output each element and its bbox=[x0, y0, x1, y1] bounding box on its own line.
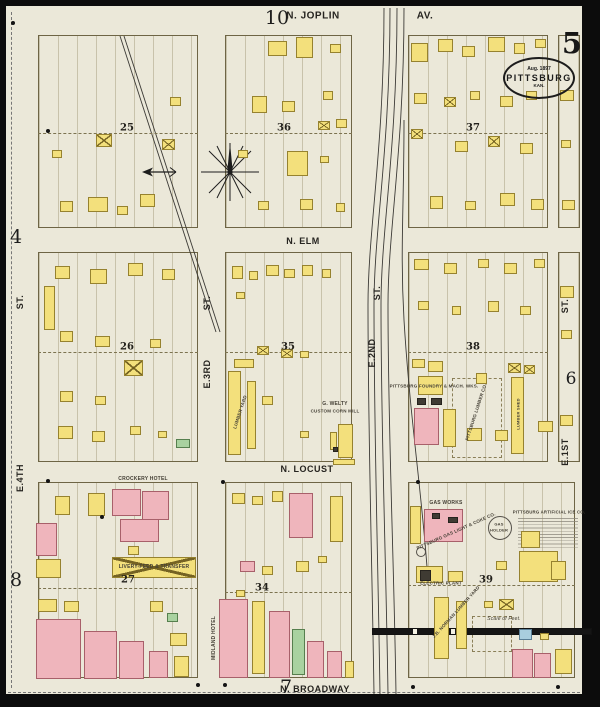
alley-line bbox=[38, 352, 198, 353]
building bbox=[236, 292, 245, 299]
building bbox=[272, 491, 283, 502]
building bbox=[38, 599, 57, 612]
building bbox=[470, 91, 480, 100]
building bbox=[302, 265, 313, 276]
stamp-state: KAN. bbox=[534, 83, 545, 88]
map-label: E.3RD bbox=[202, 359, 212, 388]
stamp-city: PITTSBURG bbox=[506, 73, 572, 83]
building bbox=[300, 351, 309, 358]
survey-dot bbox=[416, 480, 420, 484]
lumber-yard-outline bbox=[452, 378, 502, 458]
building bbox=[90, 269, 107, 284]
building bbox=[414, 408, 439, 445]
building bbox=[488, 37, 505, 52]
building bbox=[345, 661, 354, 678]
building bbox=[488, 301, 499, 312]
map-label: ST. bbox=[15, 295, 25, 310]
building bbox=[561, 140, 571, 148]
building bbox=[336, 203, 345, 212]
map-label: E.1ST bbox=[560, 438, 570, 466]
building bbox=[488, 136, 500, 147]
building bbox=[452, 306, 461, 315]
building bbox=[257, 346, 269, 355]
building bbox=[170, 97, 181, 106]
scale-bar bbox=[372, 628, 592, 635]
building bbox=[176, 439, 190, 448]
building bbox=[300, 431, 309, 438]
building bbox=[96, 134, 112, 147]
map-label: N. JOPLIN bbox=[286, 11, 339, 22]
alley-line bbox=[38, 588, 198, 589]
building bbox=[333, 459, 355, 465]
map-label: N. ELM bbox=[286, 236, 320, 246]
map-label: GAS bbox=[494, 522, 503, 527]
building bbox=[88, 493, 105, 516]
building bbox=[431, 398, 442, 405]
building bbox=[300, 199, 313, 210]
survey-dot bbox=[411, 685, 415, 689]
map-label: MIDLAND HOTEL bbox=[211, 616, 217, 660]
building bbox=[333, 447, 338, 452]
building bbox=[36, 559, 61, 578]
building bbox=[64, 601, 79, 612]
survey-dot bbox=[46, 129, 50, 133]
building bbox=[520, 143, 533, 154]
building bbox=[128, 263, 143, 276]
building bbox=[119, 641, 144, 679]
building bbox=[519, 629, 532, 640]
building bbox=[95, 336, 110, 347]
building bbox=[438, 39, 453, 52]
building bbox=[521, 531, 540, 548]
building bbox=[535, 39, 546, 48]
building bbox=[296, 37, 313, 58]
building bbox=[561, 330, 572, 339]
building bbox=[444, 263, 457, 274]
building bbox=[55, 266, 70, 279]
building bbox=[531, 199, 544, 210]
map-label: ST. bbox=[372, 286, 382, 301]
building bbox=[162, 269, 175, 280]
building bbox=[158, 431, 167, 438]
building bbox=[142, 491, 169, 520]
building bbox=[236, 590, 245, 597]
building bbox=[55, 496, 70, 515]
building bbox=[338, 424, 353, 458]
map-label: PITTSBURG FOUNDRY & MACH. WKS. bbox=[390, 384, 479, 389]
alley-line bbox=[38, 133, 198, 134]
building bbox=[484, 601, 493, 608]
building bbox=[420, 570, 431, 581]
map-label: G. WELTY bbox=[322, 401, 347, 407]
building bbox=[120, 519, 159, 542]
building bbox=[296, 561, 309, 572]
building bbox=[238, 150, 248, 158]
building bbox=[36, 523, 57, 556]
building bbox=[538, 421, 553, 432]
building bbox=[36, 619, 81, 679]
building bbox=[476, 373, 487, 384]
building bbox=[150, 339, 161, 348]
map-label: 38 bbox=[466, 342, 480, 353]
building bbox=[318, 556, 327, 563]
building bbox=[170, 633, 187, 646]
map-label: 7 bbox=[280, 676, 292, 698]
building bbox=[84, 631, 117, 679]
building bbox=[500, 193, 515, 206]
building bbox=[455, 141, 468, 152]
building bbox=[330, 44, 341, 53]
building bbox=[60, 331, 73, 342]
building bbox=[292, 629, 305, 675]
building bbox=[268, 41, 287, 56]
building bbox=[410, 506, 421, 544]
west-arrow-icon bbox=[140, 164, 180, 180]
building bbox=[512, 649, 533, 678]
map-label: HOLDER bbox=[490, 528, 508, 533]
building bbox=[534, 653, 551, 678]
map-label: AV. bbox=[417, 11, 434, 22]
building bbox=[499, 599, 514, 610]
building bbox=[150, 601, 163, 612]
building bbox=[262, 566, 273, 575]
map-label: 27 bbox=[121, 575, 135, 586]
building bbox=[269, 611, 290, 678]
building bbox=[232, 266, 243, 279]
building bbox=[524, 365, 535, 374]
building bbox=[418, 301, 429, 310]
map-label: ELECTRIC PLANT bbox=[420, 581, 462, 586]
building bbox=[430, 196, 443, 209]
building bbox=[555, 649, 572, 674]
survey-dot bbox=[196, 683, 200, 687]
building bbox=[562, 200, 575, 210]
map-label: 6 bbox=[566, 369, 577, 389]
building bbox=[508, 363, 521, 373]
building bbox=[496, 561, 507, 570]
building bbox=[520, 306, 531, 315]
building bbox=[514, 43, 525, 54]
building bbox=[140, 194, 155, 207]
building bbox=[174, 656, 189, 677]
building bbox=[52, 150, 62, 158]
building bbox=[287, 151, 308, 176]
building bbox=[534, 259, 545, 268]
building bbox=[58, 426, 73, 439]
survey-dot bbox=[46, 479, 50, 483]
map-label: CUSTOM CORN MILL bbox=[311, 409, 360, 414]
building bbox=[262, 396, 273, 405]
building bbox=[282, 101, 295, 112]
building bbox=[95, 396, 106, 405]
building bbox=[462, 46, 475, 57]
building bbox=[318, 121, 330, 130]
survey-dot bbox=[221, 480, 225, 484]
building bbox=[560, 415, 573, 426]
compass-rose-icon bbox=[198, 140, 262, 204]
building bbox=[411, 129, 423, 139]
building bbox=[232, 493, 245, 504]
map-label: 35 bbox=[281, 342, 295, 353]
building bbox=[330, 496, 343, 542]
map-label: 39 bbox=[479, 575, 493, 586]
building bbox=[117, 206, 128, 215]
building bbox=[428, 361, 443, 372]
building bbox=[322, 269, 331, 278]
survey-dot bbox=[556, 685, 560, 689]
building bbox=[167, 613, 178, 622]
map-label: 34 bbox=[255, 583, 269, 594]
building bbox=[504, 263, 517, 274]
building bbox=[444, 97, 456, 107]
building bbox=[320, 156, 329, 163]
building bbox=[412, 359, 425, 368]
building bbox=[249, 271, 258, 280]
map-label: E.2ND bbox=[367, 338, 377, 367]
building bbox=[162, 139, 175, 150]
building bbox=[60, 391, 73, 402]
survey-dot bbox=[11, 21, 15, 25]
building bbox=[252, 496, 263, 505]
building bbox=[500, 96, 513, 107]
sanborn-map-sheet: 5 Aug. 1897 PITTSBURG KAN. 10N. JOPLINAV… bbox=[0, 0, 600, 707]
building bbox=[336, 119, 347, 128]
building bbox=[92, 431, 105, 442]
map-label: LUMBER SHED bbox=[516, 398, 521, 430]
building bbox=[495, 430, 508, 441]
survey-dot bbox=[223, 683, 227, 687]
building bbox=[149, 651, 168, 678]
publisher-stamp: Aug. 1897 PITTSBURG KAN. bbox=[503, 57, 575, 99]
building bbox=[247, 381, 256, 449]
survey-dot bbox=[100, 515, 104, 519]
building bbox=[414, 93, 427, 104]
sheet-number: 5 bbox=[558, 26, 586, 60]
building bbox=[258, 201, 269, 210]
building bbox=[414, 259, 429, 270]
building bbox=[478, 259, 489, 268]
map-label: 25 bbox=[120, 123, 134, 134]
map-label: 36 bbox=[277, 123, 291, 134]
building bbox=[432, 513, 440, 519]
building bbox=[130, 426, 141, 435]
building bbox=[560, 286, 574, 298]
building bbox=[443, 409, 456, 447]
building bbox=[88, 197, 108, 212]
map-label: 26 bbox=[120, 342, 134, 353]
building bbox=[252, 96, 267, 113]
map-label: 37 bbox=[466, 123, 480, 134]
building bbox=[128, 546, 139, 555]
building bbox=[551, 561, 566, 580]
map-label: E.4TH bbox=[15, 464, 25, 492]
building bbox=[112, 489, 141, 516]
building bbox=[124, 360, 143, 376]
building bbox=[284, 269, 295, 278]
building bbox=[540, 633, 549, 640]
building bbox=[323, 91, 333, 100]
building bbox=[417, 398, 426, 405]
map-label: N. LOCUST bbox=[281, 464, 334, 474]
building bbox=[327, 651, 342, 678]
map-label: Scale of Feet. bbox=[487, 616, 521, 622]
map-label: LIVERY-FEED & TRANSFER bbox=[119, 564, 190, 570]
building bbox=[448, 517, 458, 523]
map-label: CROCKERY HOTEL bbox=[118, 476, 167, 482]
building bbox=[465, 201, 476, 210]
building bbox=[44, 286, 55, 330]
map-label: 8 bbox=[10, 569, 22, 591]
building bbox=[240, 561, 255, 572]
map-label: GAS WORKS bbox=[429, 500, 462, 506]
building bbox=[289, 493, 313, 538]
map-label: ST. bbox=[202, 296, 212, 311]
building bbox=[266, 265, 279, 276]
building bbox=[307, 641, 324, 678]
building bbox=[252, 601, 265, 674]
map-label: 4 bbox=[10, 226, 22, 248]
map-label: ST. bbox=[560, 299, 570, 314]
building bbox=[219, 599, 248, 678]
building bbox=[60, 201, 73, 212]
map-label: PITTSBURG ARTIFICIAL ICE CO. bbox=[513, 510, 585, 515]
building bbox=[234, 359, 254, 368]
building bbox=[411, 43, 428, 62]
